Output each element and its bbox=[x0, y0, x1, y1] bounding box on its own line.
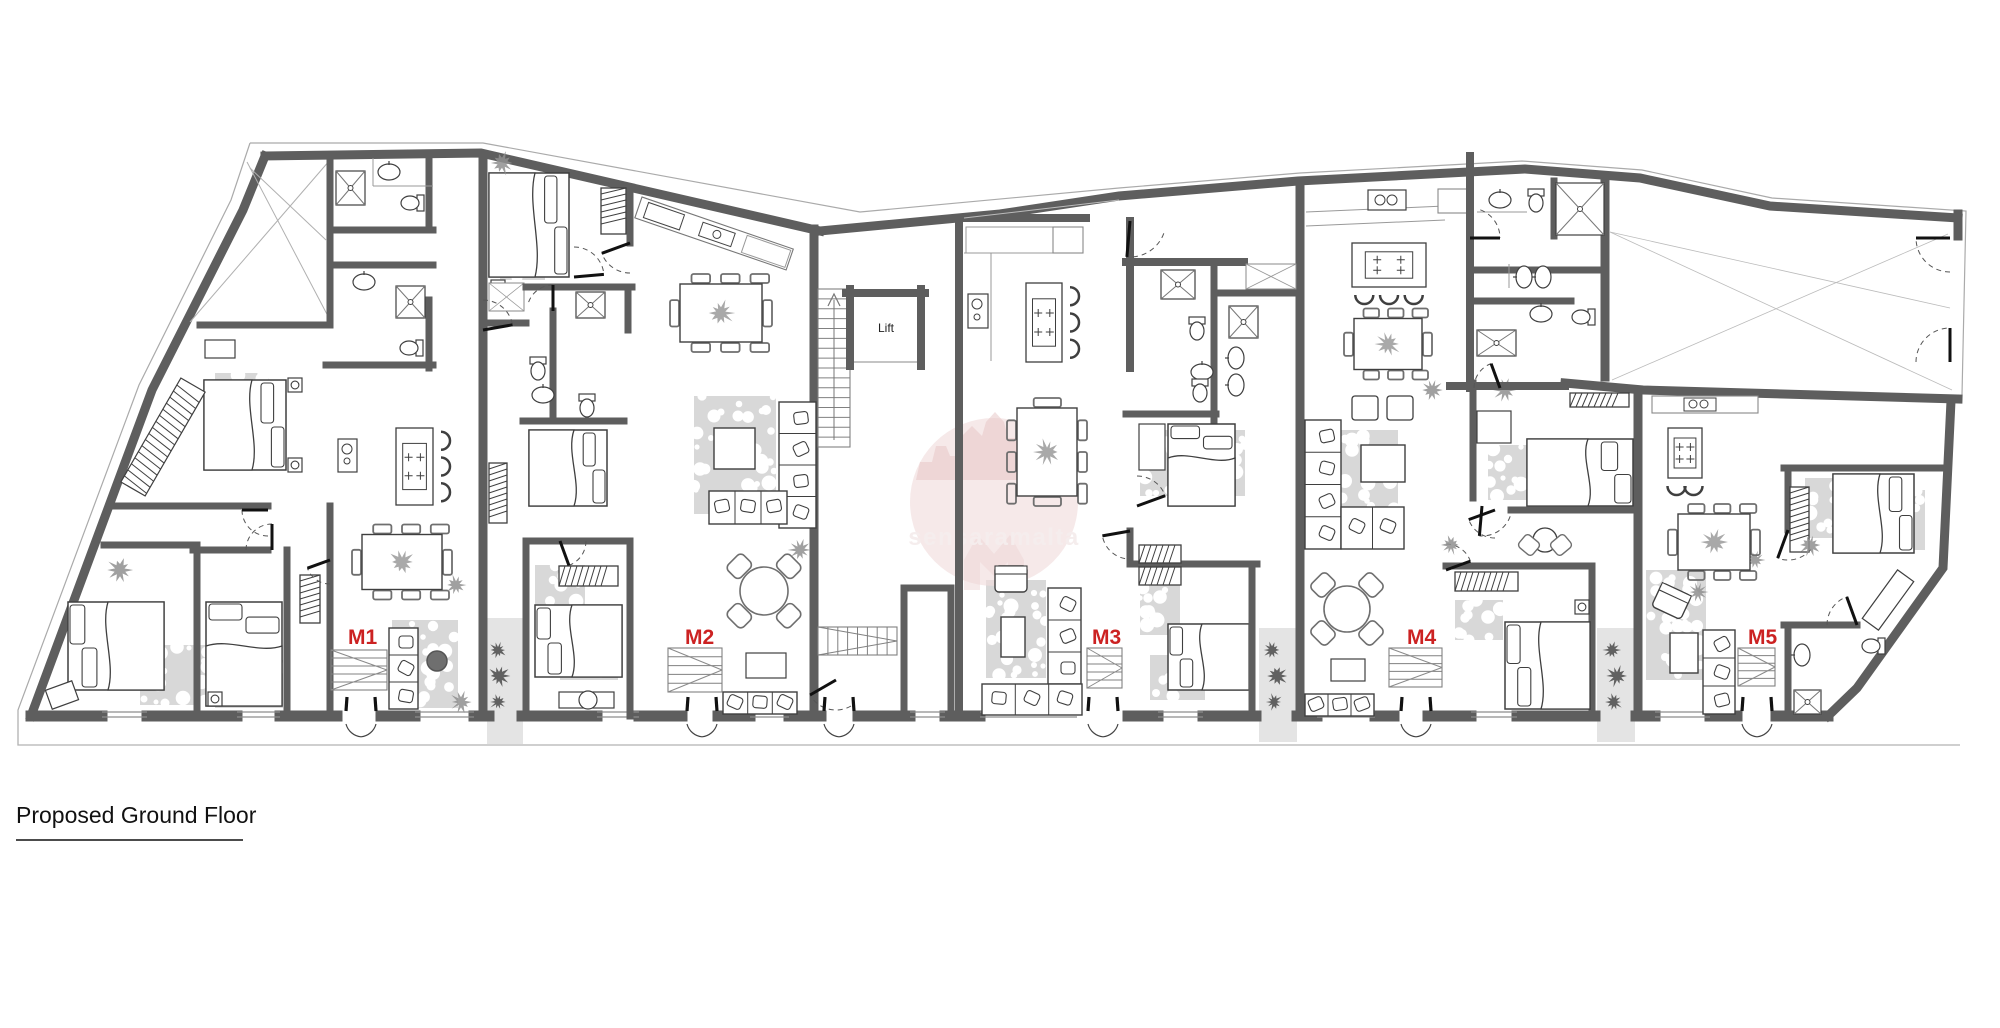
svg-text:Lift: Lift bbox=[878, 321, 895, 335]
svg-text:sensaramalta: sensaramalta bbox=[908, 524, 1079, 551]
svg-text:M4: M4 bbox=[1407, 626, 1436, 649]
svg-text:M1: M1 bbox=[348, 626, 377, 649]
svg-text:Proposed Ground Floor: Proposed Ground Floor bbox=[16, 802, 257, 828]
svg-text:M2: M2 bbox=[685, 626, 714, 649]
svg-text:M5: M5 bbox=[1748, 626, 1777, 649]
svg-text:M3: M3 bbox=[1092, 626, 1121, 649]
